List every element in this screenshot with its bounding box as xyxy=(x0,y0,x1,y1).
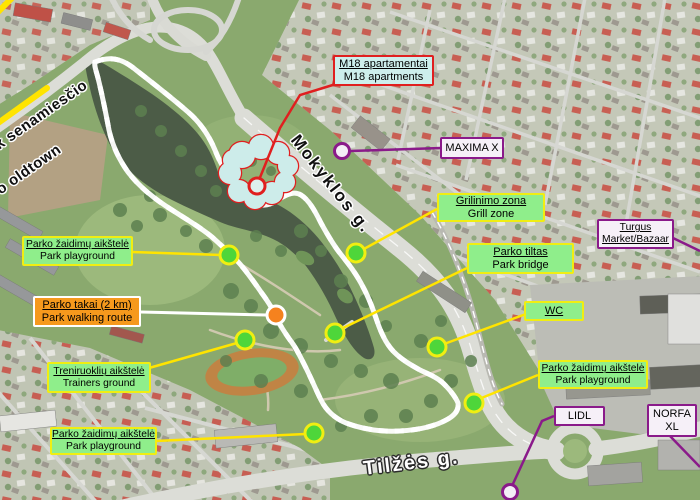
callout-maxima: MAXIMA X xyxy=(440,137,504,159)
callout-text-en: Park bridge xyxy=(492,259,548,272)
marker-lidl xyxy=(503,485,518,500)
callout-grill-zone: Grilinimo zona Grill zone xyxy=(437,193,545,222)
map-canvas: Mokyklos g. Tilžės g. Link senamiesčio T… xyxy=(0,0,700,500)
marker-maxima xyxy=(335,144,350,159)
callout-text-en: Trainers ground xyxy=(63,378,135,390)
callout-text-en: Park playground xyxy=(66,441,141,453)
callout-text-en: Park walking route xyxy=(42,312,133,325)
marker-grill-zone xyxy=(347,244,365,262)
callout-park-bridge: Parko tiltas Park bridge xyxy=(467,243,574,274)
marker-playground-sw xyxy=(305,424,323,442)
callout-text-lt: Parko tiltas xyxy=(493,246,547,259)
callout-playground-e: Parko žaidimų aikštelė Park playground xyxy=(538,360,648,389)
callout-text: LIDL xyxy=(568,410,591,423)
marker-m18 xyxy=(249,178,265,194)
callout-playground-nw: Parko žaidimų aikštelė Park playground xyxy=(22,236,133,266)
callout-text-lt: M18 apartamentai xyxy=(339,58,428,71)
callout-walking-route: Parko takai (2 km) Park walking route xyxy=(33,296,141,327)
marker-wc xyxy=(428,338,446,356)
marker-walking-route xyxy=(267,306,285,324)
callout-m18-apartments: M18 apartamentai M18 apartments xyxy=(333,55,434,86)
callout-text-lt: Treniruoklių aikštelė xyxy=(53,366,144,378)
callout-text-lt: Parko žaidimų aikštelė xyxy=(542,363,645,375)
callout-text-en: Park playground xyxy=(556,375,631,387)
callout-turgus-market: Turgus Market/Bazaar xyxy=(597,219,674,249)
callout-text: MAXIMA X xyxy=(445,142,498,155)
callout-lidl: LIDL xyxy=(554,406,605,426)
callout-text: NORFA xyxy=(653,408,691,421)
callout-text: WC xyxy=(545,305,563,318)
callout-trainers-ground: Treniruoklių aikštelė Trainers ground xyxy=(47,362,151,393)
callout-text-lt: Grilinimo zona xyxy=(456,195,526,208)
marker-park-bridge xyxy=(326,324,344,342)
callout-text-en: Market/Bazaar xyxy=(602,234,669,246)
marker-playground-e xyxy=(465,394,483,412)
marker-trainers-ground xyxy=(236,331,254,349)
callout-text-en: M18 apartments xyxy=(344,71,423,84)
callout-text-en: Grill zone xyxy=(468,208,514,221)
callout-text-lt: Parko žaidimų aikštelė xyxy=(26,239,129,251)
marker-playground-nw xyxy=(220,246,238,264)
callout-text-lt: Turgus xyxy=(620,222,652,234)
callout-text-lt: Parko žaidimų aikštelė xyxy=(52,429,155,441)
callout-text-en: Park playground xyxy=(40,251,115,263)
callout-wc: WC xyxy=(524,301,584,321)
callout-text-lt: Parko takai (2 km) xyxy=(42,299,131,312)
callout-norfa-xl: NORFA XL xyxy=(647,404,697,437)
callout-text: XL xyxy=(665,421,678,434)
callout-playground-sw: Parko žaidimų aikštelė Park playground xyxy=(50,427,157,455)
market-building xyxy=(668,294,700,344)
